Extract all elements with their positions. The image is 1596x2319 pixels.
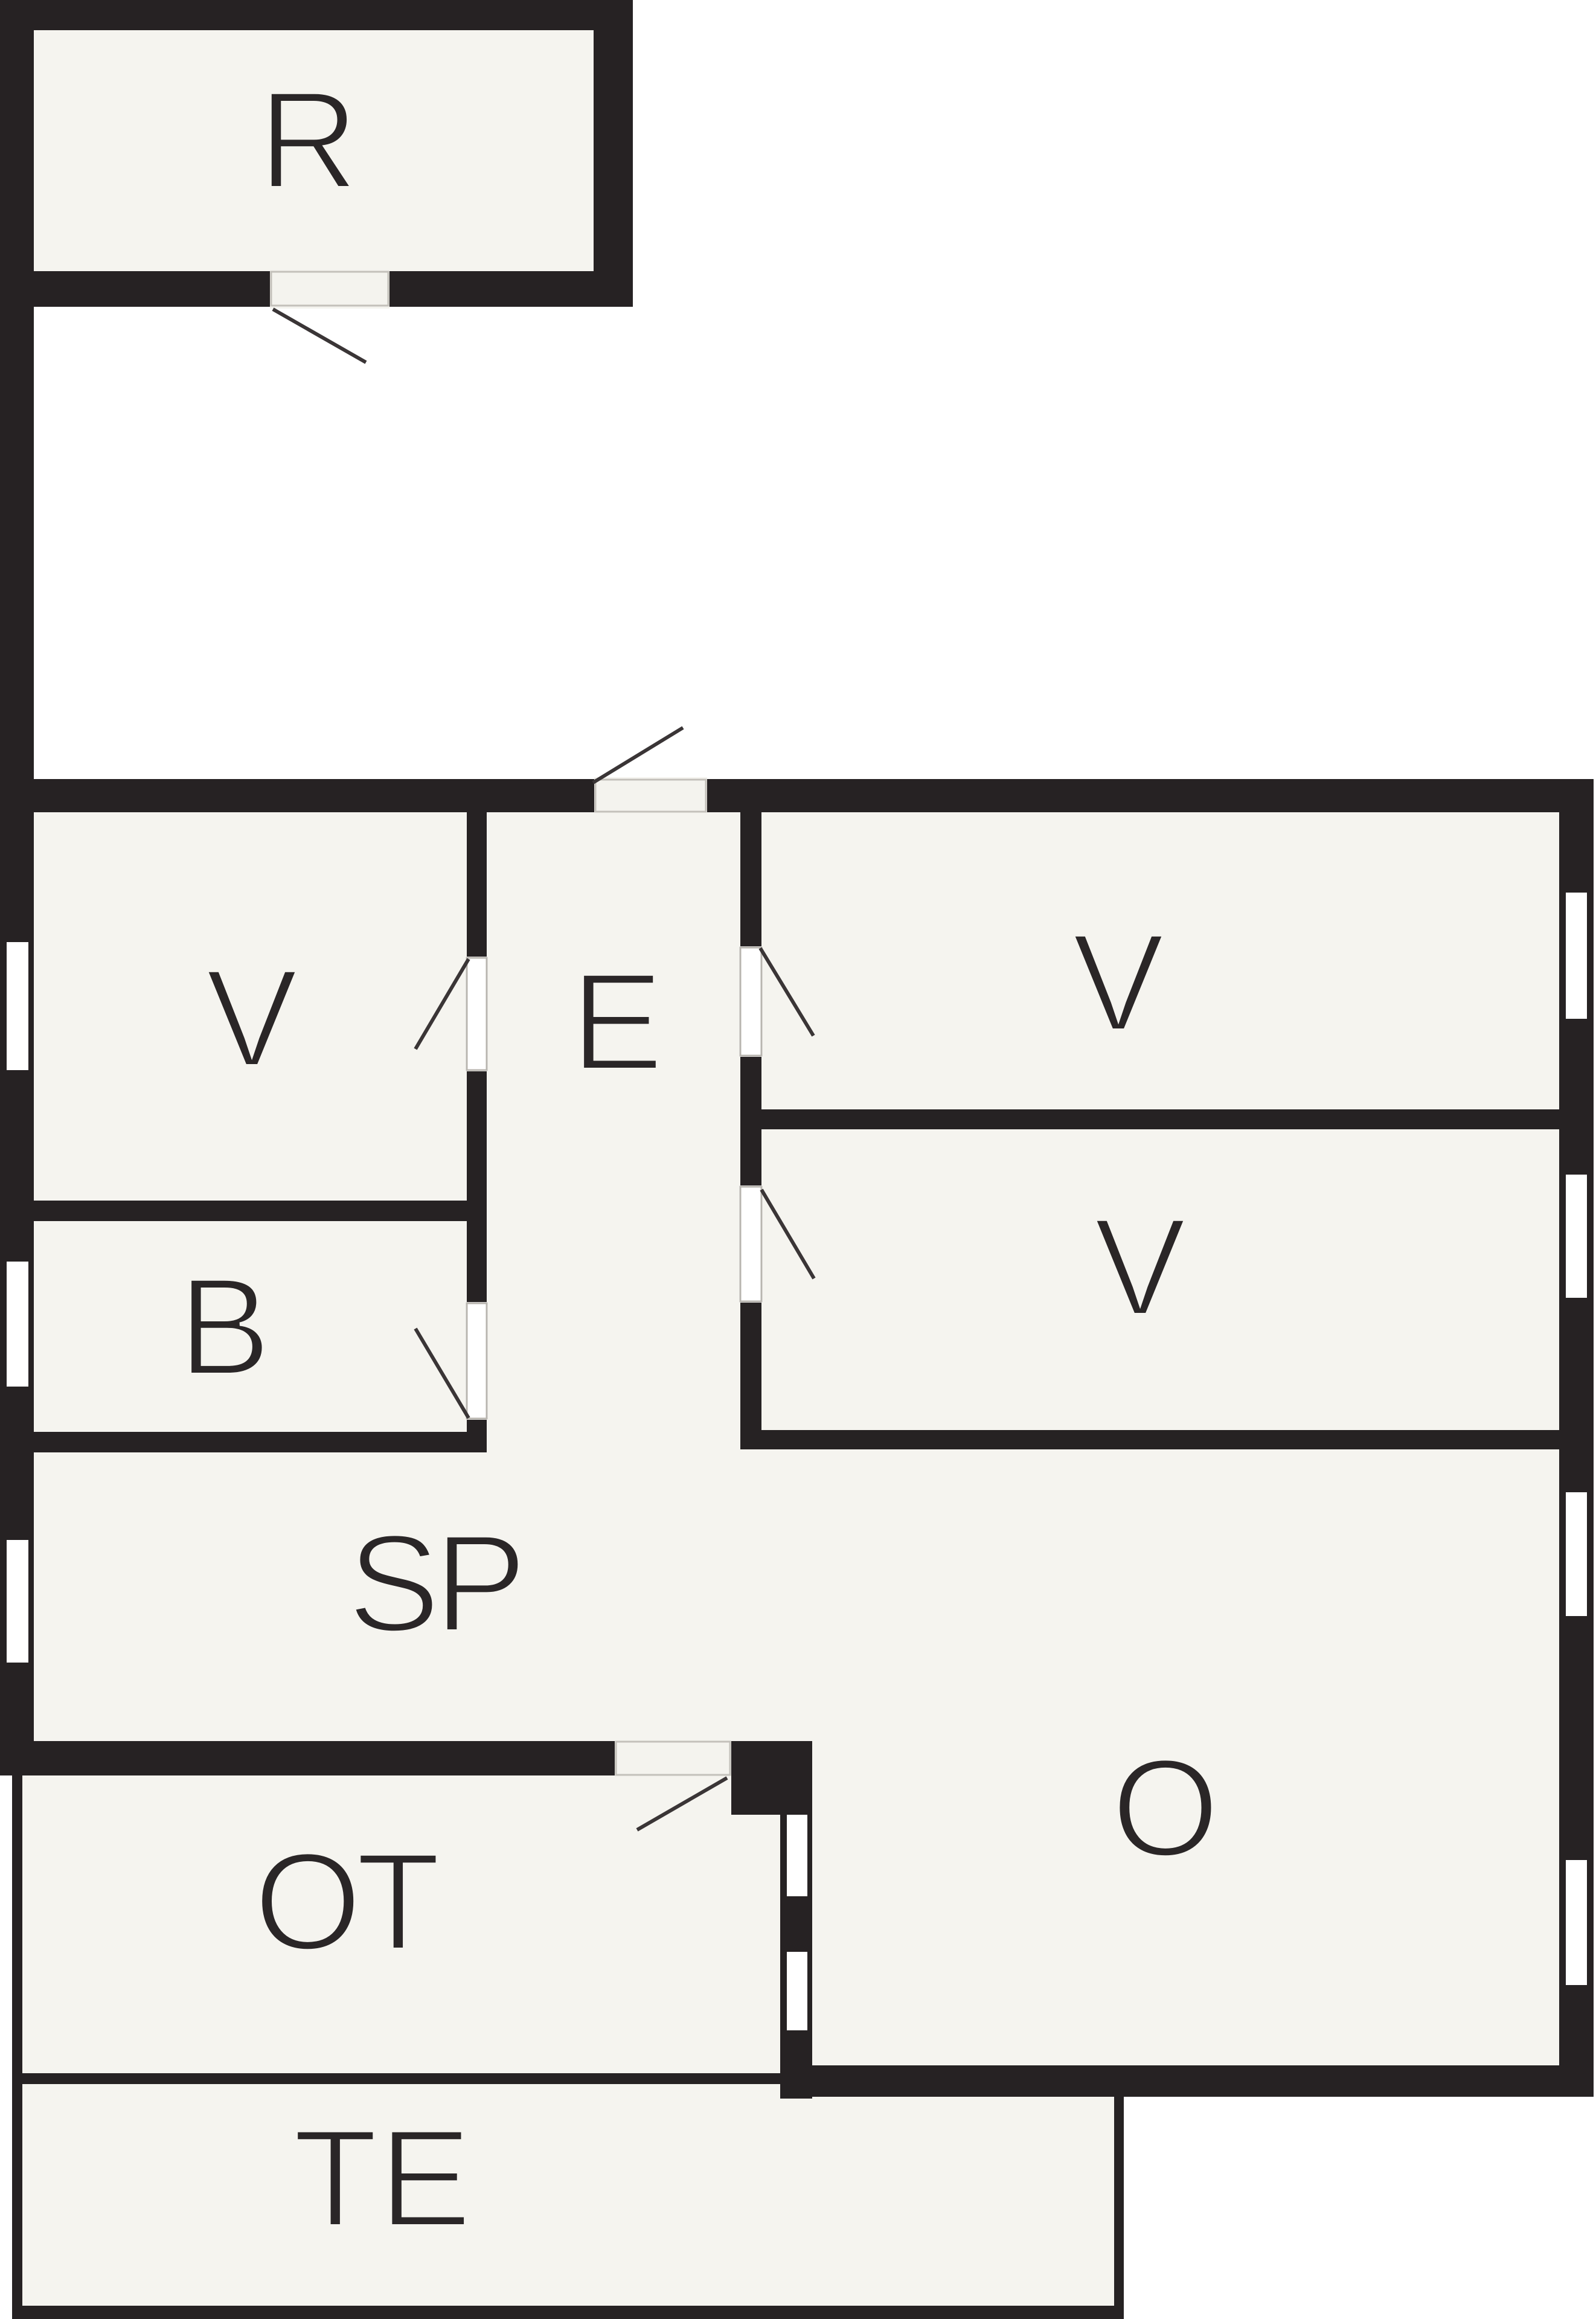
svg-text:SP: SP xyxy=(348,1506,521,1661)
svg-text:V: V xyxy=(205,940,298,1095)
svg-text:TE: TE xyxy=(293,2100,473,2256)
svg-text:V: V xyxy=(1072,905,1164,1060)
svg-text:OT: OT xyxy=(254,1824,438,1979)
svg-text:E: E xyxy=(571,944,663,1099)
svg-text:B: B xyxy=(178,1249,271,1404)
svg-text:R: R xyxy=(258,62,359,217)
svg-text:O: O xyxy=(1112,1730,1220,1885)
svg-text:V: V xyxy=(1094,1189,1186,1344)
